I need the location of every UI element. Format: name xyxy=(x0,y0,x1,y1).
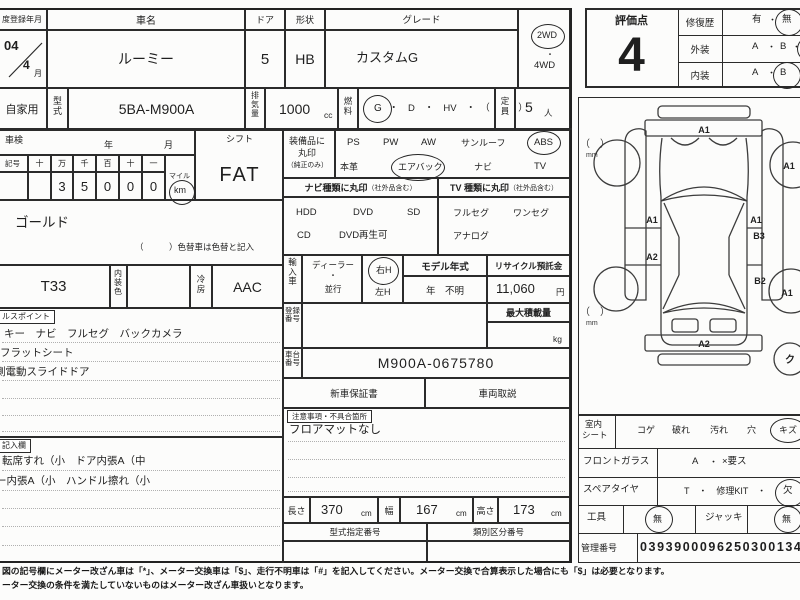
circle-abs xyxy=(527,131,561,155)
capacity-unit: 人 xyxy=(544,109,553,119)
dotted-line xyxy=(288,477,565,478)
damage-rear-bumper: A2 xyxy=(698,339,710,349)
rear-window xyxy=(663,303,745,313)
shift-cell: シフト FAT xyxy=(195,130,283,200)
cut-mark: ク xyxy=(785,354,795,366)
footer-note-1: 図の記号欄にメーター改ざん車は「*」、メーター交換車は「$」、走行不明車は「#」… xyxy=(2,566,669,576)
equipment-ps: PS xyxy=(347,138,360,149)
odometer-col: 百 xyxy=(96,155,119,172)
tools-label: 工具 xyxy=(587,513,606,524)
sales-point-line: キー ナビ フルセグ バックカメラ xyxy=(4,328,183,340)
footer-note-2: ーター交換の条件を満たしていないものはメーター改ざん車扱いとなります。 xyxy=(2,580,309,590)
length-label: 長さ xyxy=(283,497,310,523)
divider xyxy=(637,533,638,563)
body-color-cell: ゴールド （ ）色替車は色替と記入 xyxy=(0,200,283,265)
model-year-value: 年 不明 xyxy=(403,276,487,303)
warranty-cell: 新車保証書 xyxy=(283,378,425,408)
left-handle: 左H xyxy=(375,287,391,297)
classification-number-value xyxy=(427,541,570,563)
seat-yogore: 汚れ xyxy=(710,425,728,435)
nav-hdd: HDD xyxy=(296,208,317,219)
ac-value: AAC xyxy=(212,265,283,308)
grade-value-cell: カスタムG xyxy=(325,30,518,88)
circle-fuel-g xyxy=(363,95,392,123)
divider xyxy=(722,8,723,88)
capacity-cell: 5 人 xyxy=(515,88,570,130)
cowl-arcs xyxy=(671,138,737,145)
fuel-label: 燃料 xyxy=(343,97,353,116)
divider xyxy=(578,414,800,416)
dotted-line xyxy=(2,470,280,471)
height-label: 高さ xyxy=(473,497,498,523)
height-value: 173 xyxy=(513,503,535,518)
sales-points-tag: ルスポイント xyxy=(0,310,55,324)
mm-paren-top: （ ） xyxy=(580,138,610,150)
registration-label: 登録番号 xyxy=(285,307,300,324)
use-type: 自家用 xyxy=(0,88,47,130)
odometer-digit: 0 xyxy=(96,172,119,200)
nav-dvd-play: DVD再生可 xyxy=(339,231,388,242)
rear-panel-left xyxy=(672,319,698,332)
displacement-cell: 1000 cc xyxy=(265,88,338,130)
dotted-line xyxy=(2,415,280,416)
grade-value: カスタムG xyxy=(356,51,418,66)
seat-koge: コゲ xyxy=(637,425,655,435)
drive-sep: ・ xyxy=(546,50,554,59)
a-pillars xyxy=(664,203,744,237)
shape-value: HB xyxy=(285,30,325,88)
registration-blank xyxy=(302,303,487,348)
equipment-sunroof: サンルーフ xyxy=(461,138,505,148)
damage-right-b3: B3 xyxy=(753,231,765,241)
height-cell: 173 cm xyxy=(498,497,570,523)
damage-left-front-door: A1 xyxy=(646,215,658,225)
dotted-line xyxy=(2,490,280,491)
max-load-unit: kg xyxy=(553,335,562,345)
jack-label: ジャッキ xyxy=(705,513,743,524)
divider xyxy=(282,130,284,563)
shaken-month: 月 xyxy=(164,140,173,150)
circle-jack-none xyxy=(774,506,800,533)
model-year-header: モデル年式 xyxy=(403,255,487,276)
odometer-digit: 0 xyxy=(119,172,142,200)
repair-label: 修復歴 xyxy=(678,8,722,35)
shift-value: FAT xyxy=(196,153,284,197)
sales-point-line: 側電動スライドドア xyxy=(0,366,90,378)
inspector-notes-tag: 記入欄 xyxy=(0,439,31,453)
dealer-sep: ・ xyxy=(303,270,363,280)
interior-color-label: 内装色 xyxy=(113,270,123,297)
dotted-line xyxy=(2,380,280,381)
seat-label-2: シート xyxy=(582,431,608,441)
grade-header: グレード xyxy=(325,8,518,30)
mm-unit-top: mm xyxy=(586,152,598,159)
rear-left-wheel xyxy=(594,267,638,311)
dotted-line xyxy=(2,398,280,399)
drive-4wd: 4WD xyxy=(534,61,555,72)
length-cell: 370 cm xyxy=(310,497,378,523)
glass-label: フロントガラス xyxy=(583,457,649,468)
divider xyxy=(695,505,696,533)
rear-bottom-bar xyxy=(658,354,750,365)
seat-yabure: 破れ xyxy=(672,425,690,435)
odometer-digit: 3 xyxy=(51,172,73,200)
body-color: ゴールド xyxy=(15,215,69,231)
mm-paren-bottom: （ ） xyxy=(580,306,610,318)
designation-number-header: 型式指定番号 xyxy=(283,523,427,541)
mm-unit-bottom: mm xyxy=(586,320,598,327)
interior-label: 内装 xyxy=(678,62,722,88)
circle-repair-no xyxy=(775,9,800,36)
spare-label: スペアタイヤ xyxy=(583,485,639,496)
width-unit: cm xyxy=(456,509,467,518)
management-number: 03939000962503001343 xyxy=(640,540,800,554)
divider xyxy=(623,505,624,533)
reg-month: 4 xyxy=(23,59,30,73)
odometer-col: 十 xyxy=(28,155,51,172)
classification-number-header: 類別区分番号 xyxy=(427,523,570,541)
chassis-label: 車台番号 xyxy=(285,351,300,368)
dotted-line xyxy=(2,526,280,527)
car-damage-diagram: A1 A1 A1 A1 B3 A2 B2 A1 A2 ク （ ） mm （ ） … xyxy=(578,97,800,415)
interior-a: A xyxy=(752,68,758,79)
width-value: 167 xyxy=(416,503,438,518)
front-top-bar xyxy=(658,106,750,118)
dotted-line xyxy=(288,459,565,460)
displacement-value: 1000 xyxy=(279,101,310,117)
model-code-label: 型式 xyxy=(52,96,63,116)
capacity-value: 5 xyxy=(525,99,533,115)
caution-tag: 注意事項・不具合箇所 xyxy=(287,410,372,423)
caution-line: フロアマットなし xyxy=(289,424,381,437)
import-label: 輸入車 xyxy=(287,258,298,287)
exterior-a: A xyxy=(752,42,758,53)
max-load-cell: kg xyxy=(487,322,570,348)
rear-panel-right xyxy=(710,319,736,332)
divider xyxy=(578,477,800,478)
auction-sheet: 度登録年月 04 4 月 車名 ルーミー ドア 5 形状 HB グレード カスタ… xyxy=(0,0,800,600)
dotted-line xyxy=(2,361,280,362)
odometer-digit: 5 xyxy=(73,172,96,200)
designation-number-value xyxy=(283,541,427,563)
nav-type-header: ナビ種類に丸印 （社外品含む） xyxy=(283,178,438,197)
recycle-value-cell: 11,060 円 xyxy=(487,276,570,303)
recycle-unit: 円 xyxy=(556,288,565,298)
equipment-label-cell: 装備品に 丸印 （純正のみ） xyxy=(283,130,335,178)
equipment-label2: 丸印 xyxy=(298,148,316,158)
door-header: ドア xyxy=(245,8,285,30)
divider xyxy=(578,505,800,506)
management-label: 管理番号 xyxy=(581,543,617,553)
circle-spare-missing xyxy=(775,479,800,507)
dotted-line xyxy=(2,508,280,509)
tv-oneseg: ワンセグ xyxy=(513,208,549,218)
displacement-label: 排気量 xyxy=(250,92,260,119)
roof-edges xyxy=(679,237,729,275)
manual-cell: 車両取説 xyxy=(425,378,570,408)
odometer-symbol-value xyxy=(0,172,28,200)
import-dealer-cell: ディーラー ・ 並行 xyxy=(302,255,362,303)
circle-airbag xyxy=(391,154,445,181)
seat-label-1: 室内 xyxy=(585,420,602,430)
color-code: T33 xyxy=(0,265,110,308)
tv-fullseg: フルセグ xyxy=(453,208,489,218)
nav-header-sub: （社外品含む） xyxy=(368,183,417,193)
width-cell: 167 cm xyxy=(400,497,473,523)
score-value: 4 xyxy=(585,25,678,85)
equipment-aw: AW xyxy=(421,138,436,149)
shape-header: 形状 xyxy=(285,8,325,30)
odometer-symbol-header: 記号 xyxy=(0,155,28,172)
recycle-value: 11,060 xyxy=(496,282,535,297)
damage-front-bumper: A1 xyxy=(698,125,710,135)
divider xyxy=(578,448,800,449)
damage-front-right-wheel: A1 xyxy=(783,161,795,171)
max-load-header: 最大積載量 xyxy=(487,303,570,322)
repair-yes: 有 xyxy=(752,15,762,26)
exterior-sep: ・ xyxy=(767,42,776,52)
odometer-col: 千 xyxy=(73,155,96,172)
interior-color-value xyxy=(127,265,190,308)
damage-rear-right-wheel: A1 xyxy=(781,288,793,298)
circle-seat-kizu xyxy=(770,418,800,443)
seat-ana: 穴 xyxy=(747,425,756,435)
chassis-value: M900A-0675780 xyxy=(302,348,570,378)
divider xyxy=(615,415,616,448)
body-outline xyxy=(660,138,749,345)
model-code-value: 5BA-M900A xyxy=(68,88,245,130)
circle-interior-b xyxy=(773,62,800,89)
reg-date-label: 度登録年月 xyxy=(2,15,42,24)
reg-month-unit: 月 xyxy=(34,69,42,78)
tv-header-main: TV 種類に丸印 xyxy=(450,181,509,194)
divider xyxy=(657,448,658,477)
parallel-label: 並行 xyxy=(303,282,363,295)
exterior-b: B xyxy=(780,42,786,53)
nav-sd: SD xyxy=(407,208,420,219)
nav-dvd: DVD xyxy=(353,208,373,219)
length-unit: cm xyxy=(361,509,372,518)
c-pillars xyxy=(663,275,745,309)
door-value: 5 xyxy=(245,30,285,88)
odometer-digit xyxy=(28,172,51,200)
tv-analog: アナログ xyxy=(453,231,489,241)
nav-header-main: ナビ種類に丸印 xyxy=(304,181,367,194)
reg-date-header-cell: 度登録年月 xyxy=(0,8,47,30)
shaken-label: 車検 xyxy=(5,135,23,145)
dotted-line xyxy=(2,545,280,546)
capacity-label: 定員 xyxy=(500,97,510,116)
displacement-unit: cc xyxy=(324,111,333,121)
nav-cd: CD xyxy=(297,231,311,242)
equipment-label3: （純正のみ） xyxy=(287,162,328,170)
shaken-year: 年 xyxy=(104,140,113,150)
reg-date-value-cell: 04 4 月 xyxy=(0,30,47,88)
divider xyxy=(578,533,800,534)
dotted-line xyxy=(288,441,565,442)
equipment-navi: ナビ xyxy=(474,162,492,172)
damage-left-rear-door: A2 xyxy=(646,252,658,262)
equipment-tv: TV xyxy=(534,162,546,173)
divider xyxy=(657,477,658,505)
odometer-col: 十 xyxy=(119,155,142,172)
sales-point-line: フラットシート xyxy=(0,347,74,359)
windshield xyxy=(661,187,747,201)
left-side-strip xyxy=(625,129,646,300)
dotted-line xyxy=(2,431,280,432)
damage-right-rear-b2: B2 xyxy=(754,276,766,286)
inspector-note-line: 転席すれ（小 ドア内張A（中 xyxy=(2,455,146,467)
nav-items-cell: HDD DVD SD CD DVD再生可 xyxy=(283,197,438,255)
exterior-label: 外装 xyxy=(678,35,722,62)
equipment-label1: 装備品に xyxy=(289,136,325,146)
equipment-leather: 本革 xyxy=(340,162,358,172)
color-change-note: （ ）色替車は色替と記入 xyxy=(135,243,254,253)
glass-a: A xyxy=(692,457,698,468)
circle-right-handle xyxy=(368,257,399,285)
divider xyxy=(747,505,748,533)
spare-value: T ・ 修理KIT ・ xyxy=(684,486,766,496)
tv-header-sub: （社外品含む） xyxy=(509,183,558,193)
car-name-value: ルーミー xyxy=(47,30,245,88)
car-name-header: 車名 xyxy=(47,8,245,30)
odometer-col: 一 xyxy=(142,155,165,172)
width-label: 幅 xyxy=(378,497,400,523)
tv-type-header: TV 種類に丸印 （社外品含む） xyxy=(438,178,570,197)
height-unit: cm xyxy=(551,509,562,518)
tv-items-cell: フルセグ ワンセグ アナログ xyxy=(438,197,570,255)
circle-2wd xyxy=(531,24,565,49)
dotted-line xyxy=(2,342,280,343)
divider xyxy=(0,128,572,130)
circle-tools-none xyxy=(645,506,673,533)
shaken-cell: 車検 年 月 xyxy=(0,130,195,155)
shift-label: シフト xyxy=(226,134,253,144)
inspector-note-line: ー内張A（小 ハンドル擦れ（小 xyxy=(0,475,150,487)
equipment-pw: PW xyxy=(383,138,398,149)
glass-x: ×要ス xyxy=(722,457,747,468)
damage-right-front-door: A1 xyxy=(750,215,762,225)
glass-sep: ・ xyxy=(709,457,718,467)
dotted-line xyxy=(288,491,565,492)
length-value: 370 xyxy=(321,503,343,518)
ac-label: 冷房 xyxy=(196,275,206,294)
odometer-col: 万 xyxy=(51,155,73,172)
odometer-digit: 0 xyxy=(142,172,165,200)
recycle-header: リサイクル預託金 xyxy=(487,255,570,276)
